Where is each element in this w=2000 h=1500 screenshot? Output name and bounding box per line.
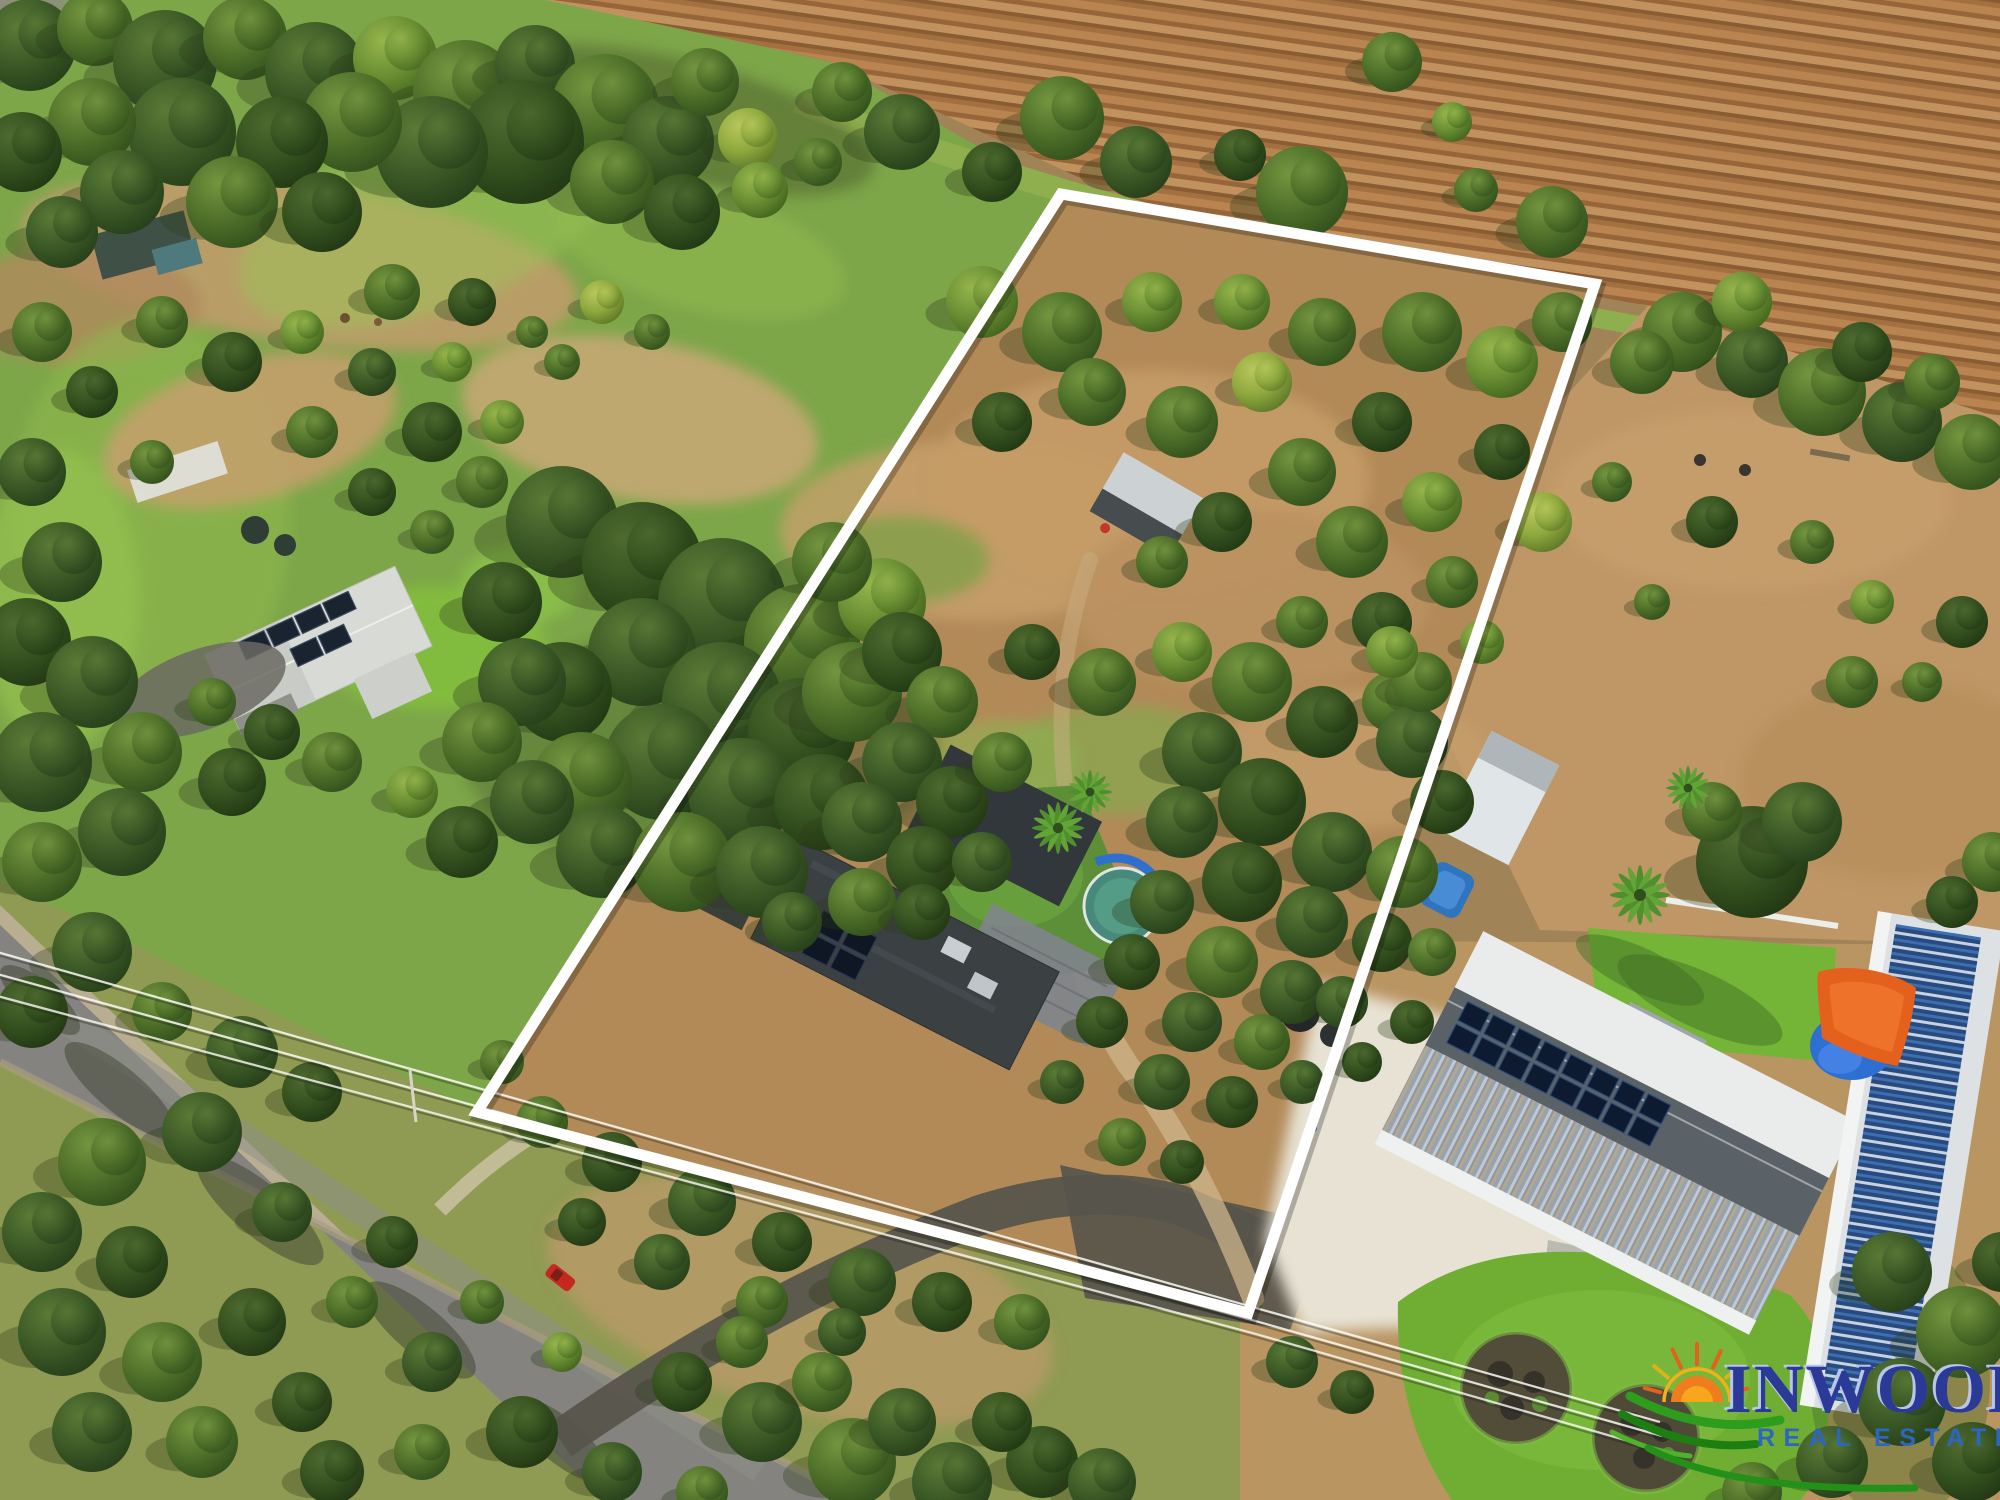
water-tank bbox=[274, 534, 296, 556]
animal bbox=[374, 318, 382, 326]
animal bbox=[340, 313, 350, 323]
aerial-photo: INWOOD INWOOD REAL ESTATE bbox=[0, 0, 2000, 1500]
water-tank bbox=[241, 516, 269, 544]
garden-bed bbox=[1460, 1332, 1572, 1444]
aerial-photo-canvas: INWOOD INWOOD REAL ESTATE bbox=[0, 0, 2000, 1500]
logo-subtitle: REAL ESTATE bbox=[1757, 1424, 2000, 1452]
tyre bbox=[1739, 464, 1751, 476]
tyre bbox=[1694, 454, 1706, 466]
logo-title: INWOOD bbox=[1725, 1351, 2000, 1427]
